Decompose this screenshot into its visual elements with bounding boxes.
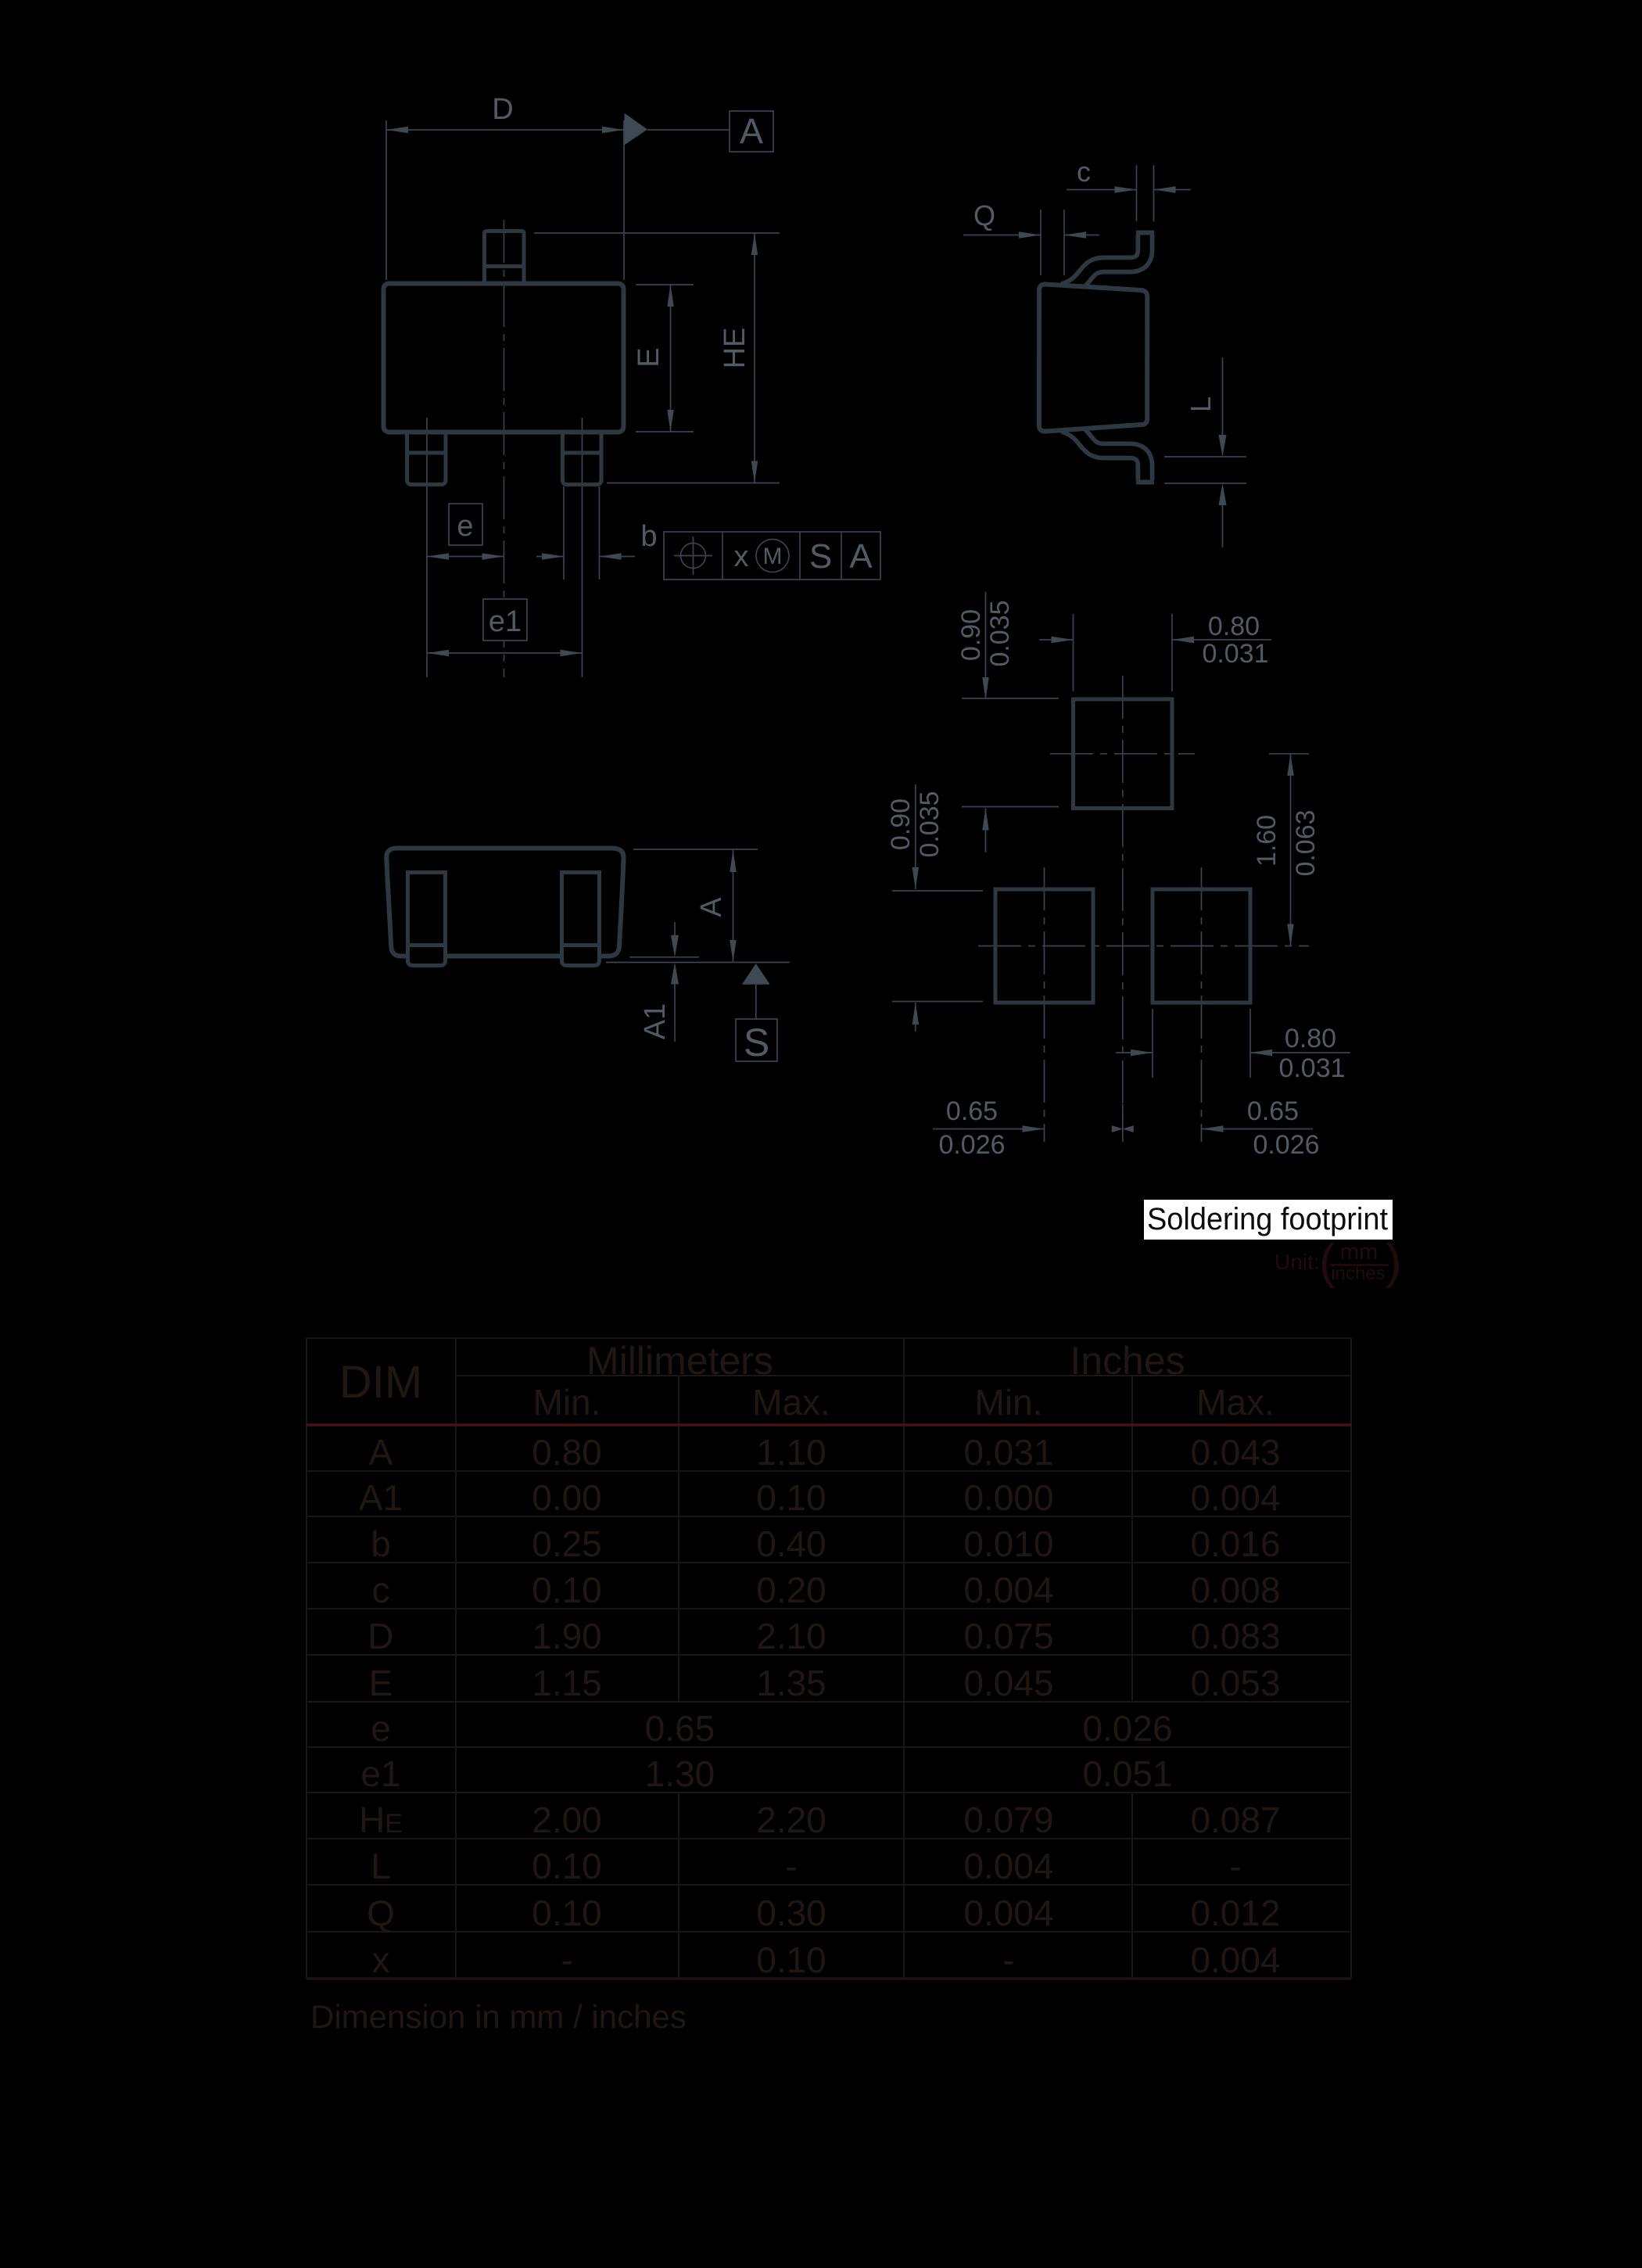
- svg-text:0.65: 0.65: [1247, 1096, 1299, 1126]
- svg-text:1.10: 1.10: [756, 1432, 826, 1473]
- svg-text:Max.: Max.: [752, 1382, 830, 1423]
- svg-text:0.10: 0.10: [532, 1846, 602, 1886]
- svg-text:S: S: [744, 1021, 769, 1064]
- svg-text:e: e: [371, 1708, 391, 1749]
- svg-text:0.10: 0.10: [756, 1940, 826, 1980]
- svg-text:Min.: Min.: [975, 1382, 1043, 1423]
- svg-text:L: L: [371, 1846, 391, 1886]
- svg-text:A: A: [849, 537, 873, 576]
- svg-text:E: E: [369, 1663, 393, 1703]
- svg-text:0.031: 0.031: [1278, 1053, 1345, 1083]
- svg-text:0.90: 0.90: [886, 798, 916, 850]
- svg-text:E: E: [633, 347, 665, 367]
- svg-text:0.012: 0.012: [1190, 1893, 1280, 1933]
- svg-text:x: x: [372, 1940, 390, 1980]
- svg-text:0.004: 0.004: [1190, 1477, 1280, 1518]
- svg-text:-: -: [1229, 1846, 1241, 1886]
- svg-text:0.075: 0.075: [963, 1616, 1053, 1656]
- svg-text:0.026: 0.026: [938, 1130, 1005, 1160]
- svg-text:0.10: 0.10: [532, 1570, 602, 1610]
- svg-text:Max.: Max.: [1196, 1382, 1275, 1423]
- svg-text:0.063: 0.063: [1291, 809, 1321, 876]
- svg-text:0.043: 0.043: [1190, 1432, 1280, 1473]
- svg-text:0.079: 0.079: [963, 1800, 1053, 1840]
- svg-text:1.90: 1.90: [532, 1616, 602, 1656]
- svg-text:x: x: [734, 540, 749, 573]
- svg-text:0.026: 0.026: [1253, 1130, 1319, 1160]
- svg-text:2.10: 2.10: [756, 1616, 826, 1656]
- svg-text:0.80: 0.80: [1208, 612, 1260, 641]
- svg-text:0.083: 0.083: [1190, 1616, 1280, 1656]
- svg-text:0.80: 0.80: [1285, 1024, 1336, 1053]
- svg-text:1.35: 1.35: [756, 1663, 826, 1703]
- svg-text:D: D: [492, 93, 513, 126]
- svg-text:0.031: 0.031: [1202, 639, 1268, 669]
- svg-text:0.008: 0.008: [1190, 1570, 1280, 1610]
- svg-text:b: b: [371, 1523, 391, 1564]
- svg-text:): ): [1386, 1235, 1402, 1289]
- svg-text:M: M: [763, 544, 783, 569]
- svg-text:A: A: [695, 897, 728, 917]
- svg-text:0.65: 0.65: [645, 1708, 715, 1749]
- svg-text:A1: A1: [639, 1003, 672, 1039]
- svg-text:0.40: 0.40: [756, 1523, 826, 1564]
- svg-text:0.00: 0.00: [532, 1477, 602, 1518]
- svg-text:-: -: [561, 1940, 572, 1980]
- svg-text:0.004: 0.004: [963, 1846, 1053, 1886]
- svg-text:2.00: 2.00: [532, 1800, 602, 1840]
- svg-text:DIM: DIM: [339, 1357, 422, 1408]
- svg-text:A1: A1: [359, 1477, 403, 1518]
- svg-text:0.087: 0.087: [1190, 1800, 1280, 1840]
- svg-text:D: D: [367, 1616, 393, 1656]
- svg-text:0.010: 0.010: [963, 1523, 1053, 1564]
- svg-text:Q: Q: [973, 199, 995, 231]
- svg-text:e1: e1: [360, 1753, 400, 1794]
- svg-text:Q: Q: [367, 1893, 395, 1933]
- svg-text:Inches: Inches: [1070, 1339, 1185, 1383]
- svg-text:Millimeters: Millimeters: [586, 1339, 773, 1383]
- svg-text:0.045: 0.045: [963, 1663, 1053, 1703]
- svg-text:b: b: [640, 520, 657, 553]
- svg-text:0.004: 0.004: [963, 1570, 1053, 1610]
- svg-text:0.30: 0.30: [756, 1893, 826, 1933]
- svg-text:0.035: 0.035: [915, 791, 945, 857]
- svg-text:HE: HE: [719, 328, 751, 369]
- svg-text:0.004: 0.004: [1190, 1940, 1280, 1980]
- svg-text:0.65: 0.65: [946, 1096, 998, 1126]
- svg-text:-: -: [785, 1846, 797, 1886]
- svg-text:L: L: [1185, 397, 1217, 412]
- svg-text:inches: inches: [1331, 1263, 1385, 1284]
- svg-text:0.80: 0.80: [532, 1432, 602, 1473]
- svg-text:0.25: 0.25: [532, 1523, 602, 1564]
- svg-text:0.004: 0.004: [963, 1893, 1053, 1933]
- svg-text:1.30: 1.30: [645, 1753, 715, 1794]
- svg-text:c: c: [1077, 156, 1091, 188]
- svg-text:0.20: 0.20: [756, 1570, 826, 1610]
- svg-text:0.016: 0.016: [1190, 1523, 1280, 1564]
- svg-text:Unit:: Unit:: [1275, 1250, 1320, 1274]
- svg-text:A: A: [369, 1432, 393, 1473]
- svg-text:0.031: 0.031: [963, 1432, 1053, 1473]
- svg-text:0.053: 0.053: [1190, 1663, 1280, 1703]
- svg-text:0.10: 0.10: [532, 1893, 602, 1933]
- svg-text:0.000: 0.000: [963, 1477, 1053, 1518]
- svg-text:e1: e1: [489, 605, 522, 638]
- svg-text:1.15: 1.15: [532, 1663, 602, 1703]
- svg-text:0.90: 0.90: [956, 609, 986, 661]
- svg-text:0.10: 0.10: [756, 1477, 826, 1518]
- svg-text:1.60: 1.60: [1252, 815, 1282, 867]
- svg-text:0.026: 0.026: [1082, 1708, 1172, 1749]
- svg-text:2.20: 2.20: [756, 1800, 826, 1840]
- svg-text:-: -: [1002, 1940, 1014, 1980]
- svg-text:mm: mm: [1340, 1240, 1378, 1265]
- svg-text:Min.: Min.: [533, 1382, 601, 1423]
- svg-text:0.051: 0.051: [1082, 1753, 1172, 1794]
- svg-text:Dimension in mm / inches: Dimension in mm / inches: [310, 1998, 687, 2035]
- svg-text:0.035: 0.035: [985, 600, 1015, 666]
- svg-text:Soldering footprint: Soldering footprint: [1147, 1202, 1388, 1236]
- svg-text:c: c: [372, 1570, 390, 1610]
- svg-text:A: A: [740, 111, 763, 151]
- svg-text:S: S: [809, 537, 832, 576]
- svg-text:e: e: [457, 510, 473, 543]
